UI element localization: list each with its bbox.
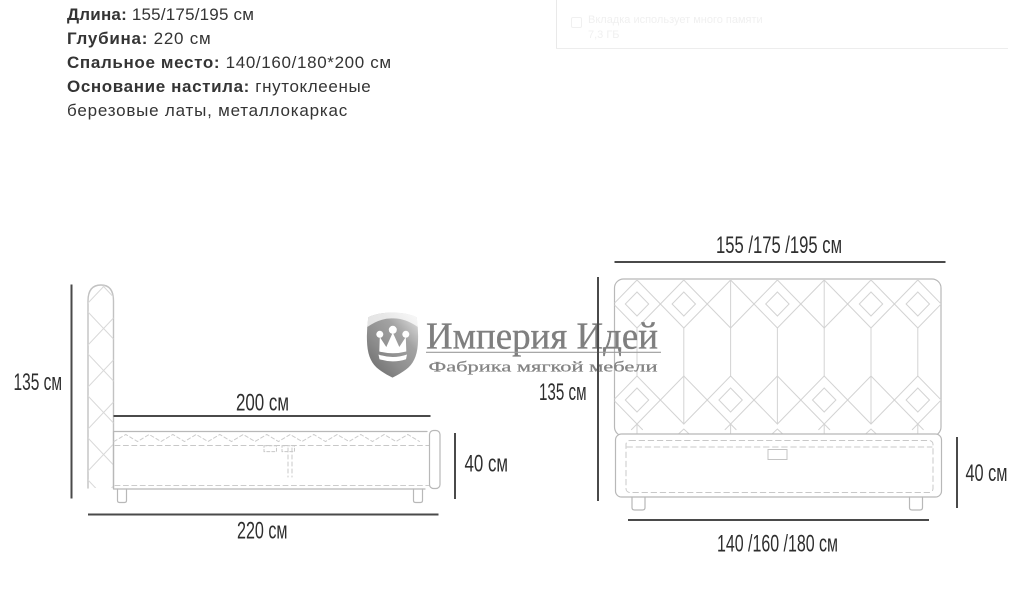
svg-text:40 см: 40 см xyxy=(966,460,1008,487)
svg-text:140 /160 /180 см: 140 /160 /180 см xyxy=(717,530,838,557)
svg-text:220 см: 220 см xyxy=(237,517,288,544)
svg-text:Фабрика мягкой мебели: Фабрика мягкой мебели xyxy=(429,360,658,376)
svg-text:200 см: 200 см xyxy=(236,389,289,416)
svg-text:Империя Идей: Империя Идей xyxy=(426,315,658,357)
svg-text:135 см: 135 см xyxy=(14,369,63,396)
svg-text:40 см: 40 см xyxy=(465,450,509,477)
svg-text:135 см: 135 см xyxy=(539,379,587,406)
svg-text:155 /175 /195 см: 155 /175 /195 см xyxy=(716,232,842,259)
